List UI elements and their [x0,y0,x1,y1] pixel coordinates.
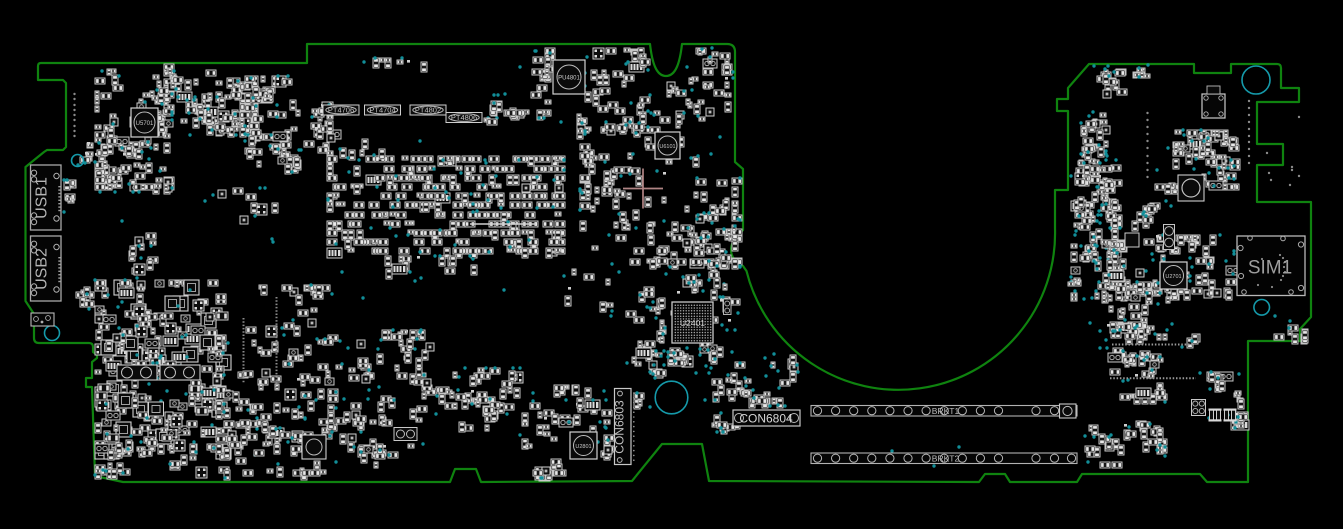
svg-text:PT4806: PT4806 [451,113,477,122]
svg-text:USB2: USB2 [34,248,51,290]
svg-text:PT4704: PT4704 [369,106,395,115]
svg-text:SIM1: SIM1 [1248,258,1292,279]
svg-text:BRKT1: BRKT1 [932,406,960,416]
svg-text:PT4802: PT4802 [415,106,441,115]
svg-text:U2701: U2701 [1165,274,1181,280]
svg-text:USB1: USB1 [34,177,51,219]
svg-text:CON6804: CON6804 [739,412,793,426]
svg-text:BRKT2: BRKT2 [932,453,960,463]
svg-text:CON6803: CON6803 [613,400,627,454]
svg-text:PU4801: PU4801 [558,76,580,82]
svg-text:U6101: U6101 [659,144,675,150]
svg-text:U2401: U2401 [680,318,705,328]
svg-text:U5701: U5701 [136,121,154,127]
svg-text:PT4706: PT4706 [328,106,354,115]
svg-text:U2801: U2801 [575,444,591,450]
